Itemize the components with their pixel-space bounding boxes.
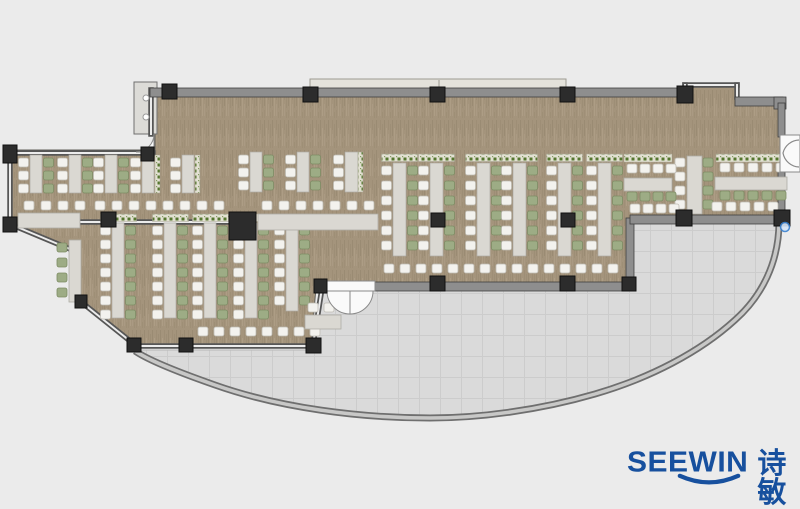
- green-chair: [748, 191, 758, 200]
- white-chair: [94, 158, 104, 167]
- green-chair: [300, 268, 310, 277]
- white-chair: [193, 226, 203, 235]
- white-chair: [643, 204, 653, 213]
- white-chair: [587, 196, 597, 205]
- white-chair: [101, 296, 111, 305]
- green-chair: [218, 310, 228, 319]
- white-chair: [712, 202, 722, 211]
- core-fixture: [143, 114, 149, 120]
- white-chair: [544, 264, 554, 273]
- white-chair: [275, 282, 285, 291]
- column: [229, 212, 256, 240]
- counter-desk: [305, 315, 341, 329]
- green-chair: [445, 196, 455, 205]
- green-chair: [573, 166, 583, 175]
- white-chair: [286, 181, 296, 190]
- column: [3, 145, 17, 163]
- wall-band: [150, 88, 690, 97]
- planter-strip: [716, 154, 786, 162]
- selection-handle: [781, 223, 790, 232]
- white-chair: [171, 158, 181, 167]
- white-chair: [382, 241, 392, 250]
- planter-strip: [547, 154, 583, 162]
- planter-strip: [155, 155, 160, 193]
- counter-desk: [69, 240, 81, 302]
- white-chair: [748, 163, 758, 172]
- desk-run: [558, 163, 571, 256]
- white-chair: [419, 226, 429, 235]
- white-chair: [171, 171, 181, 180]
- white-chair: [547, 211, 557, 220]
- white-chair: [262, 327, 272, 336]
- column: [676, 210, 692, 226]
- white-chair: [193, 254, 203, 263]
- green-chair: [408, 181, 418, 190]
- green-chair: [126, 226, 136, 235]
- white-chair: [101, 310, 111, 319]
- counter-desk: [715, 177, 787, 190]
- green-chair: [666, 192, 676, 201]
- green-chair: [218, 268, 228, 277]
- desk-run: [204, 223, 216, 318]
- desk-run: [598, 163, 611, 256]
- green-chair: [762, 191, 772, 200]
- white-chair: [234, 296, 244, 305]
- white-chair: [512, 264, 522, 273]
- green-chair: [44, 171, 54, 180]
- green-chair: [613, 181, 623, 190]
- white-chair: [587, 211, 597, 220]
- wall-band: [778, 103, 785, 137]
- door-leaf: [325, 281, 375, 291]
- desk-run: [286, 223, 298, 311]
- green-chair: [264, 181, 274, 190]
- desk-run: [477, 163, 490, 256]
- green-chair: [259, 310, 269, 319]
- white-chair: [286, 168, 296, 177]
- white-chair: [131, 171, 141, 180]
- green-chair: [259, 268, 269, 277]
- desk-run: [345, 152, 358, 192]
- floorplan-page: SEEWIN 诗敏: [0, 0, 800, 507]
- planter-strip: [193, 214, 229, 222]
- green-chair: [218, 296, 228, 305]
- green-chair: [445, 211, 455, 220]
- green-chair: [703, 200, 713, 209]
- white-chair: [466, 241, 476, 250]
- green-chair: [300, 240, 310, 249]
- green-chair: [126, 268, 136, 277]
- white-chair: [234, 240, 244, 249]
- green-chair: [445, 181, 455, 190]
- white-chair: [193, 296, 203, 305]
- white-chair: [239, 181, 249, 190]
- green-chair: [311, 168, 321, 177]
- planter-strip: [624, 154, 672, 162]
- green-chair: [126, 296, 136, 305]
- desk-run: [250, 152, 262, 192]
- green-chair: [126, 310, 136, 319]
- column: [430, 87, 445, 102]
- white-chair: [153, 268, 163, 277]
- column: [303, 87, 318, 102]
- white-chair: [75, 201, 85, 210]
- desk-run: [430, 163, 443, 256]
- green-chair: [119, 171, 129, 180]
- white-chair: [94, 171, 104, 180]
- green-chair: [445, 166, 455, 175]
- white-chair: [448, 264, 458, 273]
- white-chair: [153, 254, 163, 263]
- white-chair: [416, 264, 426, 273]
- green-chair: [408, 166, 418, 175]
- green-chair: [119, 184, 129, 193]
- white-chair: [230, 327, 240, 336]
- green-chair: [445, 241, 455, 250]
- white-chair: [41, 201, 51, 210]
- white-chair: [193, 282, 203, 291]
- green-chair: [178, 310, 188, 319]
- white-chair: [275, 268, 285, 277]
- green-chair: [653, 192, 663, 201]
- green-chair: [178, 254, 188, 263]
- green-chair: [613, 226, 623, 235]
- white-chair: [419, 166, 429, 175]
- white-chair: [419, 181, 429, 190]
- white-chair: [364, 201, 374, 210]
- white-chair: [547, 196, 557, 205]
- white-chair: [464, 264, 474, 273]
- white-chair: [198, 327, 208, 336]
- white-chair: [466, 166, 476, 175]
- column: [179, 338, 193, 352]
- white-chair: [234, 282, 244, 291]
- column: [101, 212, 116, 227]
- white-chair: [419, 211, 429, 220]
- green-chair: [57, 258, 67, 267]
- desk-run: [164, 223, 176, 318]
- white-chair: [171, 184, 181, 193]
- white-chair: [675, 172, 685, 181]
- green-chair: [178, 296, 188, 305]
- brand-logo-latin-wrap: SEEWIN: [627, 448, 748, 478]
- green-chair: [613, 166, 623, 175]
- green-chair: [408, 226, 418, 235]
- column: [622, 277, 636, 291]
- white-chair: [656, 204, 666, 213]
- column: [75, 295, 87, 308]
- core-fixture: [143, 95, 149, 101]
- planter-strip: [382, 154, 418, 162]
- green-chair: [528, 211, 538, 220]
- brand-logo-swoosh-icon: [677, 473, 741, 489]
- desk-run: [69, 155, 81, 193]
- green-chair: [300, 254, 310, 263]
- wall-band: [373, 282, 632, 291]
- green-chair: [492, 241, 502, 250]
- column: [560, 87, 575, 102]
- white-chair: [382, 226, 392, 235]
- green-chair: [408, 211, 418, 220]
- green-chair: [264, 168, 274, 177]
- column: [431, 213, 445, 227]
- white-chair: [193, 310, 203, 319]
- green-chair: [492, 196, 502, 205]
- white-chair: [734, 163, 744, 172]
- column: [430, 276, 445, 291]
- white-chair: [19, 171, 29, 180]
- white-chair: [576, 264, 586, 273]
- white-chair: [547, 166, 557, 175]
- white-chair: [234, 310, 244, 319]
- desk-run: [513, 163, 526, 256]
- white-chair: [286, 155, 296, 164]
- white-chair: [608, 264, 618, 273]
- green-chair: [178, 240, 188, 249]
- green-chair: [259, 254, 269, 263]
- white-chair: [180, 201, 190, 210]
- desk-run: [297, 152, 309, 192]
- green-chair: [492, 181, 502, 190]
- white-chair: [58, 158, 68, 167]
- green-chair: [119, 158, 129, 167]
- green-chair: [259, 240, 269, 249]
- white-chair: [146, 201, 156, 210]
- white-chair: [640, 164, 650, 173]
- column: [314, 279, 327, 293]
- white-chair: [726, 202, 736, 211]
- column: [162, 84, 177, 99]
- white-chair: [740, 202, 750, 211]
- white-chair: [547, 181, 557, 190]
- white-chair: [480, 264, 490, 273]
- white-chair: [193, 240, 203, 249]
- white-chair: [129, 201, 139, 210]
- white-chair: [547, 241, 557, 250]
- white-chair: [101, 268, 111, 277]
- white-chair: [382, 181, 392, 190]
- counter-desk: [258, 214, 378, 230]
- white-chair: [234, 254, 244, 263]
- planter-strip: [358, 152, 363, 192]
- white-chair: [214, 201, 224, 210]
- green-chair: [218, 282, 228, 291]
- white-chair: [101, 282, 111, 291]
- green-chair: [408, 241, 418, 250]
- green-chair: [218, 254, 228, 263]
- green-chair: [528, 196, 538, 205]
- green-chair: [492, 166, 502, 175]
- white-chair: [560, 264, 570, 273]
- planter-strip: [466, 154, 502, 162]
- green-chair: [528, 241, 538, 250]
- white-chair: [334, 168, 344, 177]
- green-chair: [703, 158, 713, 167]
- column: [141, 147, 154, 161]
- white-chair: [630, 204, 640, 213]
- brand-logo-cjk: 诗敏: [757, 449, 800, 507]
- brand-logo: SEEWIN 诗敏: [627, 448, 800, 507]
- white-chair: [400, 264, 410, 273]
- green-chair: [528, 166, 538, 175]
- white-chair: [275, 240, 285, 249]
- white-chair: [24, 201, 34, 210]
- green-chair: [528, 181, 538, 190]
- white-chair: [419, 241, 429, 250]
- planter-strip: [153, 214, 189, 222]
- white-chair: [313, 201, 323, 210]
- green-chair: [83, 184, 93, 193]
- white-chair: [193, 268, 203, 277]
- green-chair: [445, 226, 455, 235]
- green-chair: [703, 172, 713, 181]
- white-chair: [239, 168, 249, 177]
- green-chair: [613, 241, 623, 250]
- wall-band: [630, 215, 786, 224]
- white-chair: [587, 166, 597, 175]
- column: [306, 338, 321, 353]
- white-chair: [296, 201, 306, 210]
- green-chair: [613, 196, 623, 205]
- green-chair: [218, 226, 228, 235]
- white-chair: [279, 201, 289, 210]
- white-chair: [294, 327, 304, 336]
- white-chair: [502, 181, 512, 190]
- column: [127, 338, 141, 352]
- desk-run: [182, 155, 194, 193]
- white-chair: [19, 158, 29, 167]
- white-chair: [384, 264, 394, 273]
- white-chair: [502, 211, 512, 220]
- green-chair: [178, 282, 188, 291]
- desk-run: [393, 163, 406, 256]
- green-chair: [126, 254, 136, 263]
- white-chair: [275, 296, 285, 305]
- white-chair: [466, 211, 476, 220]
- green-chair: [44, 184, 54, 193]
- white-chair: [466, 226, 476, 235]
- white-chair: [153, 310, 163, 319]
- white-chair: [466, 196, 476, 205]
- green-chair: [613, 211, 623, 220]
- white-chair: [382, 196, 392, 205]
- white-chair: [214, 327, 224, 336]
- column: [560, 276, 575, 291]
- desk-run: [105, 155, 117, 193]
- planter-strip: [195, 155, 200, 193]
- white-chair: [197, 201, 207, 210]
- white-chair: [347, 201, 357, 210]
- white-chair: [153, 226, 163, 235]
- white-chair: [275, 254, 285, 263]
- white-chair: [592, 264, 602, 273]
- planter-strip: [502, 154, 538, 162]
- green-chair: [720, 191, 730, 200]
- white-chair: [246, 327, 256, 336]
- white-chair: [278, 327, 288, 336]
- desk-run: [30, 155, 42, 193]
- planter-strip: [587, 154, 623, 162]
- counter-desk: [624, 178, 672, 191]
- green-chair: [311, 181, 321, 190]
- white-chair: [762, 163, 772, 172]
- white-chair: [334, 155, 344, 164]
- green-chair: [627, 192, 637, 201]
- green-chair: [640, 192, 650, 201]
- green-chair: [218, 240, 228, 249]
- white-chair: [587, 241, 597, 250]
- green-chair: [57, 273, 67, 282]
- white-chair: [675, 186, 685, 195]
- green-chair: [83, 158, 93, 167]
- green-chair: [734, 191, 744, 200]
- white-chair: [131, 158, 141, 167]
- column: [561, 213, 575, 227]
- white-chair: [308, 303, 318, 312]
- green-chair: [126, 282, 136, 291]
- white-chair: [720, 163, 730, 172]
- white-chair: [502, 166, 512, 175]
- white-chair: [58, 201, 68, 210]
- counter-desk: [687, 156, 702, 214]
- white-chair: [382, 211, 392, 220]
- green-chair: [259, 282, 269, 291]
- column: [3, 217, 17, 232]
- green-chair: [264, 155, 274, 164]
- white-chair: [153, 240, 163, 249]
- green-chair: [57, 288, 67, 297]
- green-chair: [492, 226, 502, 235]
- white-chair: [153, 282, 163, 291]
- white-chair: [239, 155, 249, 164]
- white-chair: [101, 254, 111, 263]
- white-chair: [466, 181, 476, 190]
- white-chair: [502, 241, 512, 250]
- green-chair: [57, 243, 67, 252]
- desk-run: [112, 223, 124, 318]
- green-chair: [259, 296, 269, 305]
- white-chair: [262, 201, 272, 210]
- white-chair: [528, 264, 538, 273]
- white-chair: [94, 184, 104, 193]
- green-chair: [573, 196, 583, 205]
- white-chair: [587, 181, 597, 190]
- planter-strip: [419, 154, 455, 162]
- white-chair: [382, 166, 392, 175]
- green-chair: [178, 226, 188, 235]
- green-chair: [126, 240, 136, 249]
- white-chair: [234, 268, 244, 277]
- white-chair: [334, 181, 344, 190]
- white-chair: [19, 184, 29, 193]
- white-chair: [502, 196, 512, 205]
- white-chair: [432, 264, 442, 273]
- white-chair: [666, 164, 676, 173]
- green-chair: [492, 211, 502, 220]
- green-chair: [83, 171, 93, 180]
- green-chair: [44, 158, 54, 167]
- green-chair: [408, 196, 418, 205]
- column: [677, 86, 693, 103]
- floorplan-svg: [0, 0, 800, 507]
- white-chair: [58, 184, 68, 193]
- white-chair: [675, 158, 685, 167]
- white-chair: [101, 240, 111, 249]
- green-chair: [311, 155, 321, 164]
- white-chair: [547, 226, 557, 235]
- white-chair: [95, 201, 105, 210]
- white-chair: [153, 296, 163, 305]
